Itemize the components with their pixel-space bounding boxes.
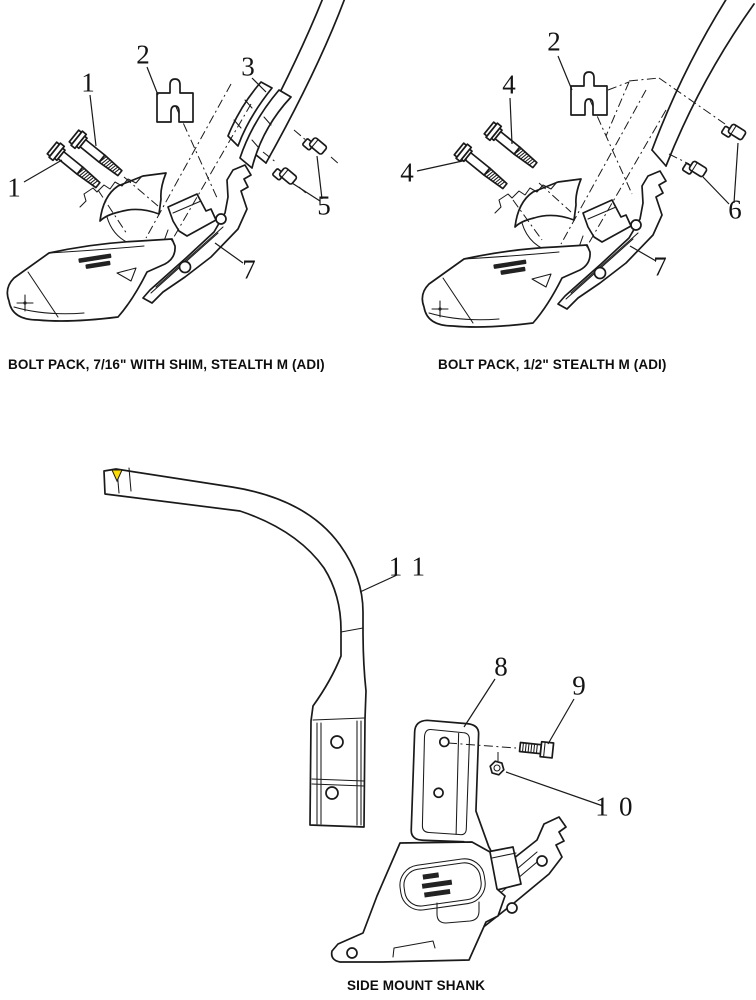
callout-bolt-pack-12-2-6: 2 [547, 26, 561, 57]
shank-curve-outer [266, 0, 345, 163]
shank-curve-inner [652, 0, 727, 150]
callout-bolt-pack-716-7-5: 7 [242, 254, 256, 285]
callout-side-mount-shank-8-12: 8 [494, 651, 508, 682]
callout-bolt-pack-12-6-9: 6 [728, 194, 742, 225]
caption-bolt-pack-12: BOLT PACK, 1/2" STEALTH M (ADI) [438, 357, 667, 372]
callout-bolt-pack-716-2-2: 2 [136, 39, 150, 70]
parts-diagram-page: 11235724467118910 BOLT PACK, 7/16" WITH … [0, 0, 756, 1000]
caption-bolt-pack-716: BOLT PACK, 7/16" WITH SHIM, STEALTH M (A… [8, 357, 325, 372]
callout-side-mount-shank-10-14: 10 [595, 791, 643, 822]
parts-line-art [0, 0, 756, 1000]
hex-nut-icon [490, 761, 504, 775]
caption-side-mount-shank: SIDE MOUNT SHANK [347, 978, 485, 993]
callout-bolt-pack-716-1-1: 1 [7, 172, 21, 203]
callout-bolt-pack-12-4-7: 4 [502, 69, 516, 100]
leader-lines [360, 575, 603, 806]
callout-side-mount-shank-9-13: 9 [572, 670, 586, 701]
diagram-bolt-pack-12 [417, 0, 754, 327]
callout-bolt-pack-716-1-0: 1 [81, 67, 95, 98]
callout-bolt-pack-716-5-4: 5 [317, 190, 331, 221]
diagram-side-mount-shank [104, 468, 603, 962]
diagram-bolt-pack-716 [7, 0, 345, 321]
callout-bolt-pack-12-4-8: 4 [400, 157, 414, 188]
shank-bar [104, 469, 366, 827]
callout-side-mount-shank-11-11: 11 [389, 551, 436, 582]
callout-bolt-pack-12-7-10: 7 [653, 251, 667, 282]
callout-bolt-pack-716-3-3: 3 [241, 51, 255, 82]
